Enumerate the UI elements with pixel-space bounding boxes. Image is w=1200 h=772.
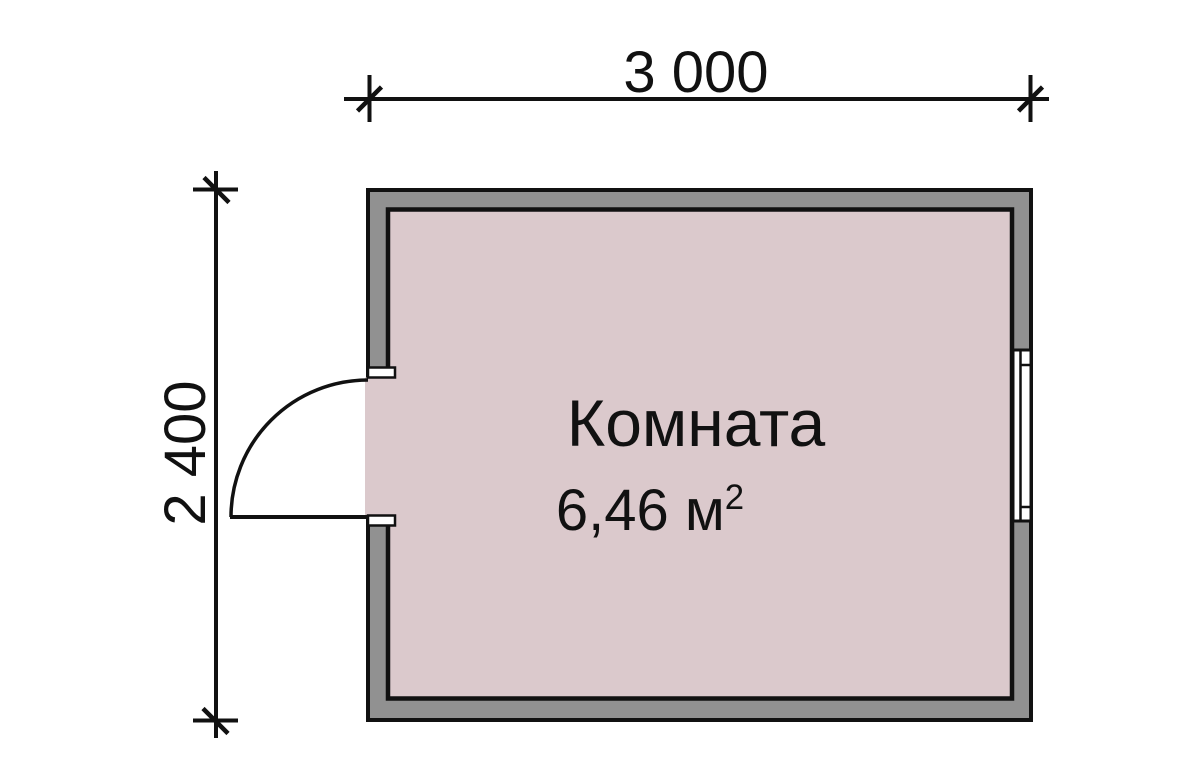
room-name: Комната xyxy=(567,390,825,456)
door-swing-arc xyxy=(231,380,368,517)
window xyxy=(1013,350,1031,521)
floor-plan: 3 000 2 400 Комната 6,46 м2 xyxy=(0,0,1200,772)
dimension-height-label: 2 400 xyxy=(157,380,215,525)
room-area-superscript: 2 xyxy=(725,481,744,516)
room-area-value: 6,46 м xyxy=(556,482,725,540)
door-jamb-bottom xyxy=(368,516,395,526)
dimension-width-label: 3 000 xyxy=(623,44,768,102)
door-opening xyxy=(365,378,391,516)
room-area-label: 6,46 м2 xyxy=(556,482,744,540)
door-jamb-top xyxy=(368,368,395,378)
